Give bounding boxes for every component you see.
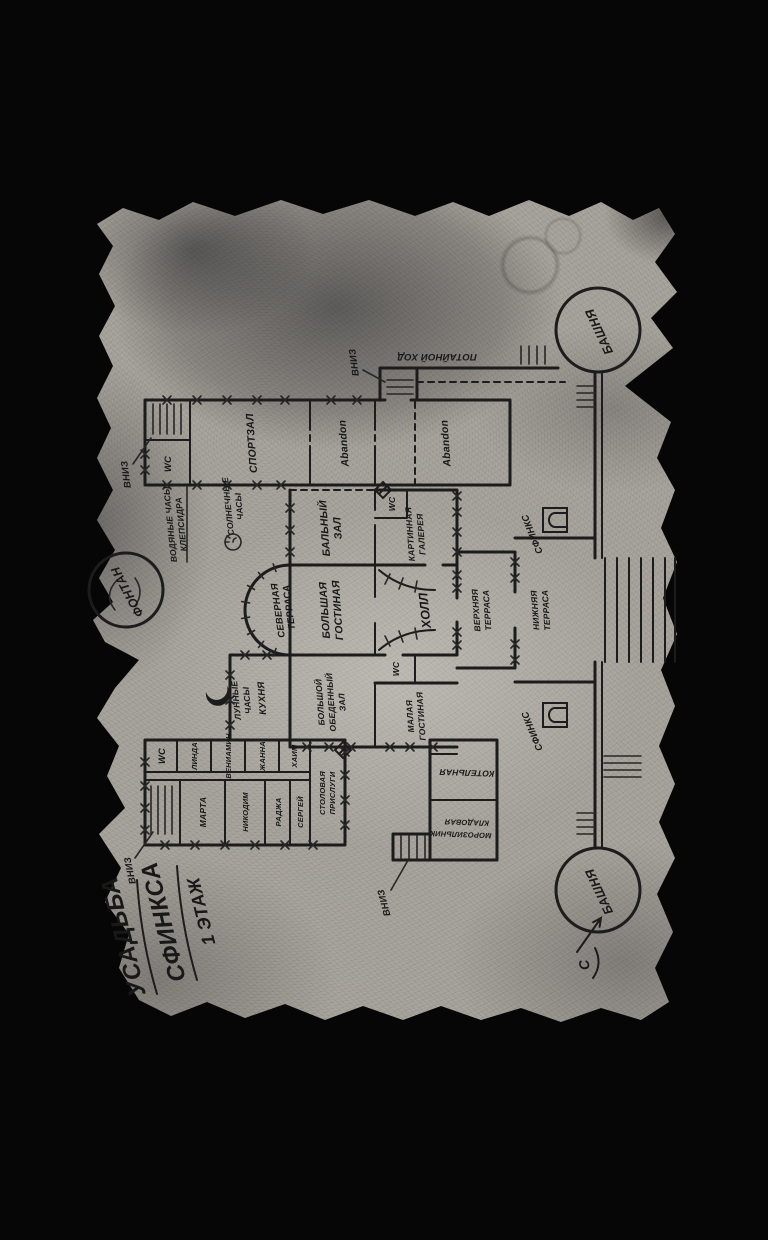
label-wc-gallery: WC [387,496,397,511]
label-ballroom-2: ЗАЛ [331,516,345,540]
label-moon-clock-2: ЧАСЫ [241,686,254,714]
label-room-raja: РАДЖА [274,797,283,826]
label-sphinx-east: СФИНКС [520,513,546,556]
label-servants-dining-2: ПРИСЛУГИ [328,771,337,814]
label-freezer-2: КЛАДОВАЯ [444,817,489,828]
label-wc-servants: WC [157,748,168,764]
rotated-map-container: УСАДЬБА СФИНКСА 1 ЭТАЖ ФОНТАН БАШНЯ БАШН… [85,190,685,1030]
label-secret-passage: ПОТАЙНОЙ ХОД [397,351,477,363]
label-room-haim: ХАИМ [290,744,299,768]
label-sphinx-west: СФИНКС [520,710,546,753]
label-hall: ХОЛЛ [416,592,434,630]
label-ballroom-1: БАЛЬНЫЙ [316,499,333,556]
book-page: { "map": { "title": ["УСАДЬБА", "СФИНКСА… [0,0,768,1240]
label-down-southwest: ВНИЗ [376,888,394,917]
label-gym: СПОРТЗАЛ [244,412,260,473]
entrance-steps [605,558,675,662]
label-upper-terrace-2: ТЕРРАСА [481,589,494,630]
label-room-veniamin: ВЕНИАМИН [224,733,233,779]
sphinx-statue-west [543,703,567,727]
label-room-marta: МАРТА [198,797,208,828]
map-title-line3: 1 ЭТАЖ [183,874,219,947]
label-wc-wing: WC [163,456,174,472]
label-tower-se: БАШНЯ [582,306,616,357]
label-sundial-2: ЧАСЫ [233,492,246,520]
annotation-leader-lines [133,370,407,890]
label-gallery-2: ГАЛЕРЕЯ [415,513,428,556]
parchment-sheet: УСАДЬБА СФИНКСА 1 ЭТАЖ ФОНТАН БАШНЯ БАШН… [85,190,685,1030]
label-freezer-1: МОРОЗИЛЬНИК [429,829,492,840]
label-dining-3: ЗАЛ [336,693,347,712]
label-lower-terrace-2: ТЕРРАСА [540,589,553,630]
label-abandon-1: Abandon [336,419,351,468]
label-room-sergey: СЕРГЕЙ [296,796,305,828]
label-compass-north: С [575,958,593,972]
label-room-zhanna: ЖАННА [258,741,267,772]
label-kitchen: КУХНЯ [256,680,269,715]
label-tower-sw: БАШНЯ [582,866,616,917]
floor-plan-map: УСАДЬБА СФИНКСА 1 ЭТАЖ ФОНТАН БАШНЯ БАШН… [85,190,685,1030]
label-down-secret: ВНИЗ [347,348,362,377]
sphinx-statue-east [543,508,567,532]
label-down-wing: ВНИЗ [119,460,134,489]
label-wc-hall: WC [391,661,401,676]
label-room-nikodim: НИКОДИМ [241,792,250,832]
label-small-living-2: ГОСТИНАЯ [414,691,427,741]
label-room-linda: ЛИНДА [190,742,199,771]
label-abandon-2: Abandon [438,419,453,468]
label-boiler: КОТЕЛЬНАЯ [439,767,495,779]
label-servants-dining-1: СТОЛОВАЯ [318,771,327,815]
